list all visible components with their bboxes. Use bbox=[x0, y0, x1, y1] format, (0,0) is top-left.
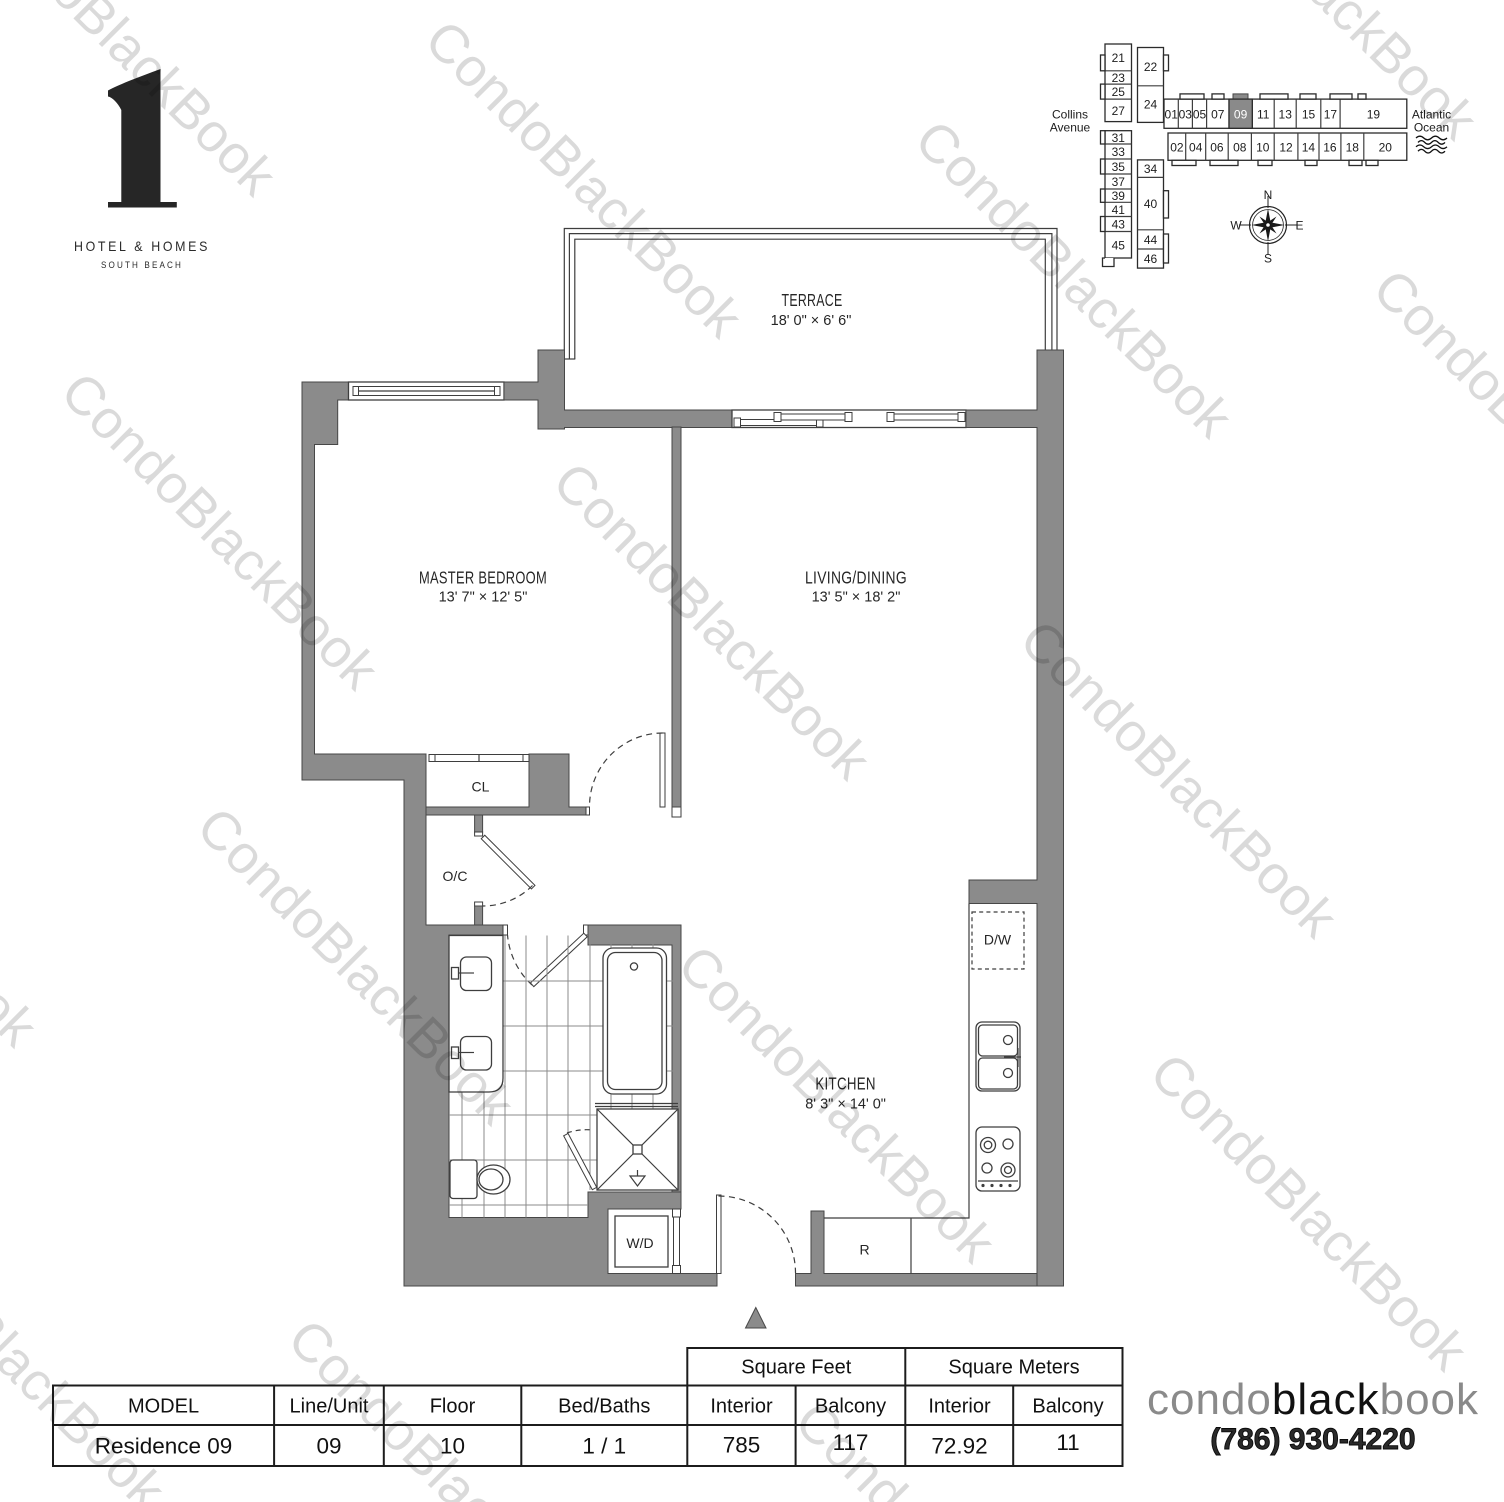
svg-text:23: 23 bbox=[1112, 71, 1126, 85]
svg-text:39: 39 bbox=[1112, 189, 1126, 203]
svg-text:785: 785 bbox=[723, 1433, 761, 1458]
svg-text:21: 21 bbox=[1112, 51, 1126, 65]
svg-text:R: R bbox=[859, 1242, 869, 1258]
svg-text:12: 12 bbox=[1279, 141, 1293, 155]
svg-text:14: 14 bbox=[1302, 141, 1316, 155]
svg-text:16: 16 bbox=[1323, 141, 1337, 155]
svg-text:17: 17 bbox=[1324, 108, 1338, 122]
svg-text:W: W bbox=[1230, 219, 1242, 233]
svg-text:02: 02 bbox=[1170, 141, 1184, 155]
svg-text:19: 19 bbox=[1367, 108, 1381, 122]
svg-text:LIVING/DINING: LIVING/DINING bbox=[805, 568, 907, 588]
svg-text:31: 31 bbox=[1112, 131, 1126, 145]
svg-text:SOUTH BEACH: SOUTH BEACH bbox=[101, 260, 183, 271]
svg-text:06: 06 bbox=[1210, 141, 1224, 155]
svg-text:09: 09 bbox=[316, 1434, 341, 1459]
svg-text:Interior: Interior bbox=[928, 1396, 991, 1418]
svg-text:46: 46 bbox=[1144, 252, 1158, 266]
svg-text:04: 04 bbox=[1189, 141, 1203, 155]
svg-text:20: 20 bbox=[1379, 141, 1393, 155]
svg-text:CL: CL bbox=[472, 779, 490, 795]
svg-text:Interior: Interior bbox=[710, 1396, 773, 1418]
svg-text:(786) 930-4220: (786) 930-4220 bbox=[1210, 1423, 1415, 1456]
svg-text:09: 09 bbox=[1234, 108, 1248, 122]
svg-text:Bed/Baths: Bed/Baths bbox=[558, 1396, 650, 1418]
svg-text:10: 10 bbox=[1256, 141, 1270, 155]
svg-text:24: 24 bbox=[1144, 97, 1158, 111]
svg-text:Avenue: Avenue bbox=[1050, 121, 1091, 135]
svg-text:35: 35 bbox=[1112, 160, 1126, 174]
svg-text:18' 0" × 6' 6": 18' 0" × 6' 6" bbox=[771, 313, 852, 329]
svg-text:25: 25 bbox=[1112, 85, 1126, 99]
svg-text:Floor: Floor bbox=[430, 1396, 476, 1418]
svg-text:1 / 1: 1 / 1 bbox=[582, 1434, 626, 1459]
svg-text:27: 27 bbox=[1112, 104, 1126, 118]
svg-text:41: 41 bbox=[1112, 203, 1126, 217]
svg-text:13' 5" × 18' 2": 13' 5" × 18' 2" bbox=[812, 590, 901, 606]
svg-text:HOTEL & HOMES: HOTEL & HOMES bbox=[74, 238, 210, 254]
svg-text:condoblackbook: condoblackbook bbox=[1147, 1375, 1479, 1424]
svg-text:15: 15 bbox=[1302, 108, 1316, 122]
svg-text:MODEL: MODEL bbox=[128, 1396, 199, 1418]
svg-text:11: 11 bbox=[1257, 108, 1270, 122]
svg-text:33: 33 bbox=[1112, 145, 1126, 159]
svg-text:18: 18 bbox=[1346, 141, 1360, 155]
svg-text:45: 45 bbox=[1112, 238, 1126, 252]
svg-text:Square Feet: Square Feet bbox=[741, 1357, 852, 1379]
svg-text:05: 05 bbox=[1193, 108, 1207, 122]
svg-text:44: 44 bbox=[1144, 233, 1158, 247]
svg-text:72.92: 72.92 bbox=[931, 1434, 987, 1459]
svg-text:O/C: O/C bbox=[443, 868, 468, 884]
svg-text:11: 11 bbox=[1056, 1430, 1079, 1455]
svg-text:TERRACE: TERRACE bbox=[782, 290, 843, 310]
svg-text:13: 13 bbox=[1279, 108, 1293, 122]
svg-text:37: 37 bbox=[1112, 175, 1126, 189]
svg-text:08: 08 bbox=[1233, 141, 1247, 155]
svg-text:13' 7" × 12' 5": 13' 7" × 12' 5" bbox=[439, 590, 528, 606]
svg-text:Collins: Collins bbox=[1052, 108, 1088, 122]
svg-text:01: 01 bbox=[1165, 108, 1179, 122]
svg-text:W/D: W/D bbox=[626, 1235, 653, 1251]
svg-text:E: E bbox=[1295, 219, 1303, 233]
svg-text:S: S bbox=[1264, 252, 1272, 266]
svg-text:22: 22 bbox=[1144, 60, 1158, 74]
svg-text:03: 03 bbox=[1179, 108, 1193, 122]
svg-text:MASTER BEDROOM: MASTER BEDROOM bbox=[419, 568, 547, 588]
svg-text:43: 43 bbox=[1112, 218, 1126, 232]
svg-text:34: 34 bbox=[1144, 162, 1158, 176]
svg-text:40: 40 bbox=[1144, 197, 1158, 211]
svg-text:N: N bbox=[1264, 188, 1273, 202]
svg-text:07: 07 bbox=[1211, 108, 1225, 122]
svg-text:Square Meters: Square Meters bbox=[948, 1357, 1079, 1379]
svg-text:Balcony: Balcony bbox=[1032, 1396, 1103, 1418]
svg-text:D/W: D/W bbox=[984, 932, 1012, 948]
